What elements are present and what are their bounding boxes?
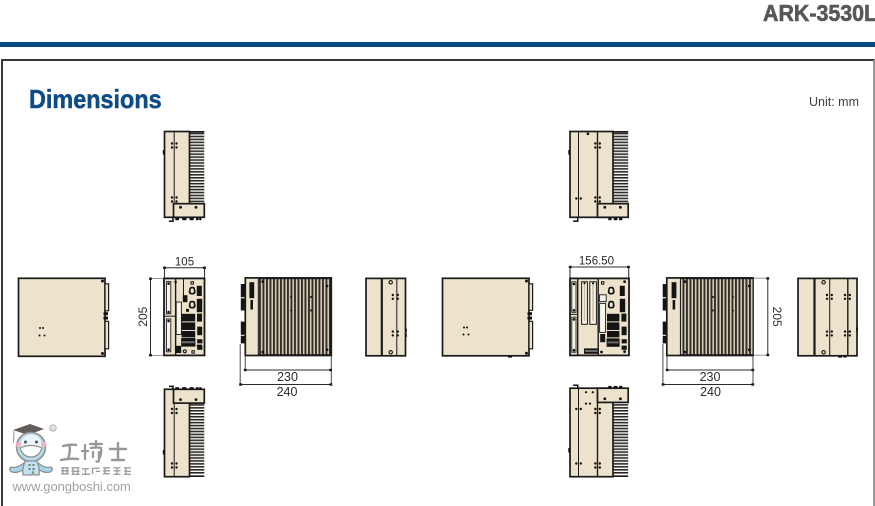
svg-text:www.gongboshi.com: www.gongboshi.com xyxy=(12,479,131,494)
svg-text:240: 240 xyxy=(700,385,721,399)
svg-text:205: 205 xyxy=(136,306,150,326)
svg-text:156.50: 156.50 xyxy=(579,256,614,268)
svg-text:240: 240 xyxy=(277,385,298,399)
svg-text:R: R xyxy=(51,427,55,433)
svg-text:205: 205 xyxy=(770,307,784,327)
svg-text:105: 105 xyxy=(175,256,194,268)
svg-text:230: 230 xyxy=(277,370,298,384)
svg-text:230: 230 xyxy=(700,370,721,384)
